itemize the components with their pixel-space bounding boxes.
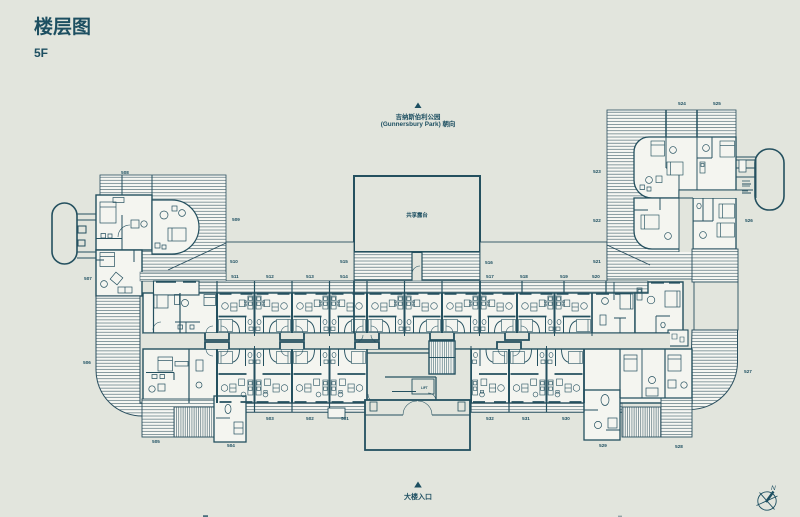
svg-text:楼层图: 楼层图 — [34, 15, 91, 38]
svg-text:532: 532 — [486, 416, 494, 421]
svg-text:LIFT: LIFT — [421, 386, 428, 390]
svg-text:吉纳斯伯利公园: 吉纳斯伯利公园 — [396, 112, 441, 121]
svg-text:516: 516 — [485, 260, 493, 265]
svg-text:502: 502 — [306, 416, 314, 421]
svg-text:522: 522 — [593, 218, 601, 223]
svg-text:530: 530 — [562, 416, 570, 421]
svg-text:527: 527 — [744, 369, 752, 374]
svg-text:526: 526 — [745, 218, 753, 223]
svg-text:515: 515 — [340, 259, 348, 264]
svg-text:504: 504 — [227, 443, 235, 448]
svg-text:520: 520 — [592, 274, 600, 279]
svg-text:528: 528 — [675, 444, 683, 449]
svg-text:501: 501 — [341, 416, 349, 421]
svg-text:5F: 5F — [34, 46, 48, 60]
svg-text:508: 508 — [121, 170, 129, 175]
svg-text:511: 511 — [231, 274, 239, 279]
svg-text:512: 512 — [266, 274, 274, 279]
svg-text:N: N — [771, 485, 776, 492]
svg-text:507: 507 — [84, 276, 92, 281]
svg-text:518: 518 — [520, 274, 528, 279]
svg-text:529: 529 — [599, 443, 607, 448]
svg-text:524: 524 — [678, 101, 686, 106]
svg-text:共享露台: 共享露台 — [406, 211, 428, 219]
svg-text:514: 514 — [340, 274, 348, 279]
svg-text:513: 513 — [306, 274, 314, 279]
svg-text:510: 510 — [230, 259, 238, 264]
svg-text:509: 509 — [232, 217, 240, 222]
svg-text:503: 503 — [266, 416, 274, 421]
svg-text:521: 521 — [593, 259, 601, 264]
svg-text:531: 531 — [522, 416, 530, 421]
svg-text:517: 517 — [486, 274, 494, 279]
svg-text:大楼入口: 大楼入口 — [404, 492, 432, 501]
svg-text:(Gunnersbury Park) 朝向: (Gunnersbury Park) 朝向 — [381, 119, 456, 128]
svg-text:519: 519 — [560, 274, 568, 279]
svg-text:506: 506 — [83, 360, 91, 365]
svg-text:523: 523 — [593, 169, 601, 174]
svg-text:505: 505 — [152, 439, 160, 444]
svg-text:525: 525 — [713, 101, 721, 106]
